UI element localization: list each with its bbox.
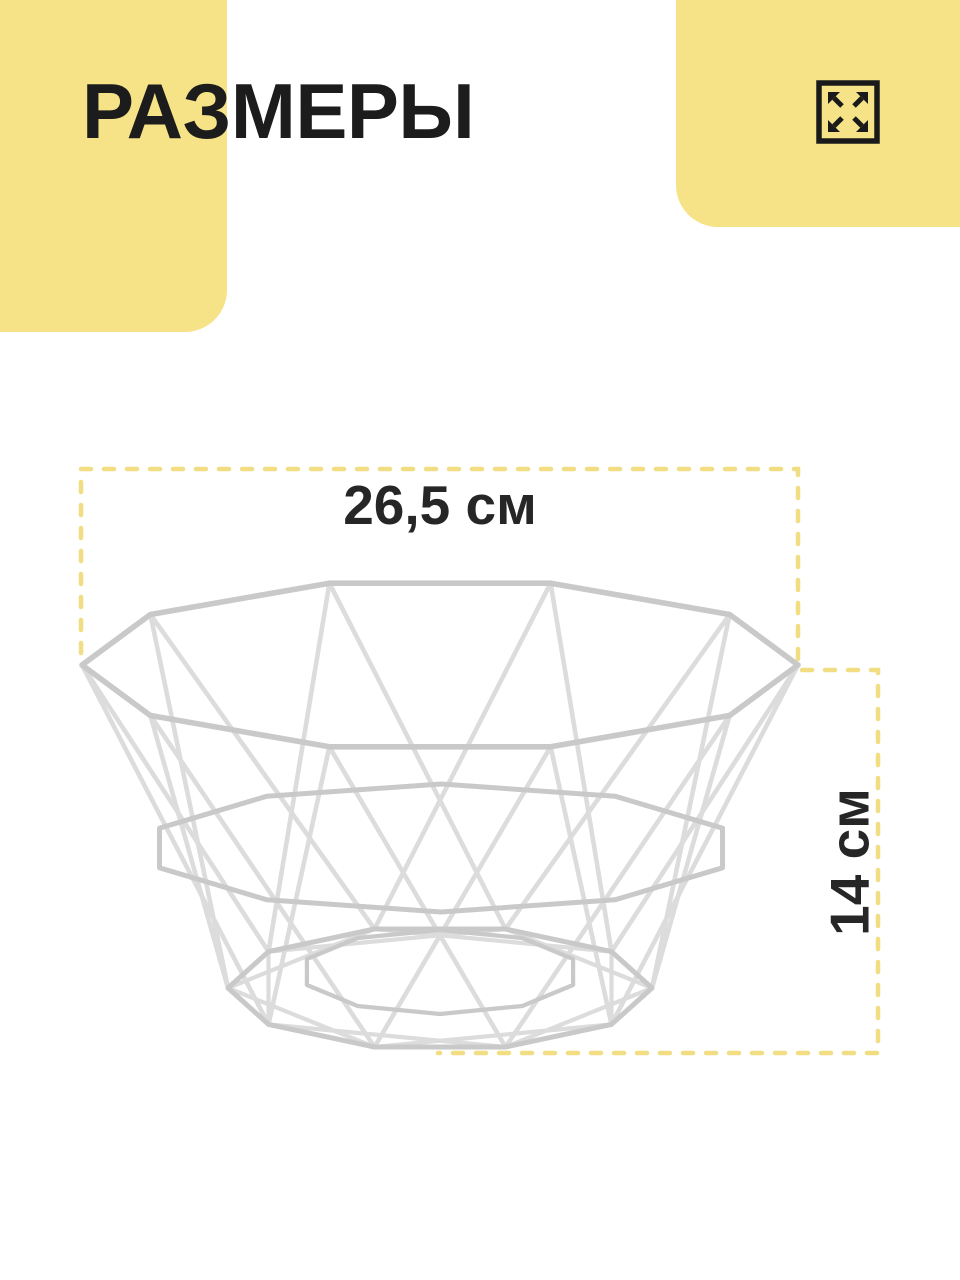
diagram-layer <box>0 0 960 1280</box>
dimension-lines <box>81 469 878 1053</box>
height-dimension-label: 14 см <box>823 788 878 936</box>
width-dimension-label: 26,5 см <box>343 478 537 533</box>
infographic-canvas: РАЗМЕРЫ 26,5 см 14 см <box>0 0 960 1280</box>
wire-basket-illustration <box>82 583 798 1047</box>
